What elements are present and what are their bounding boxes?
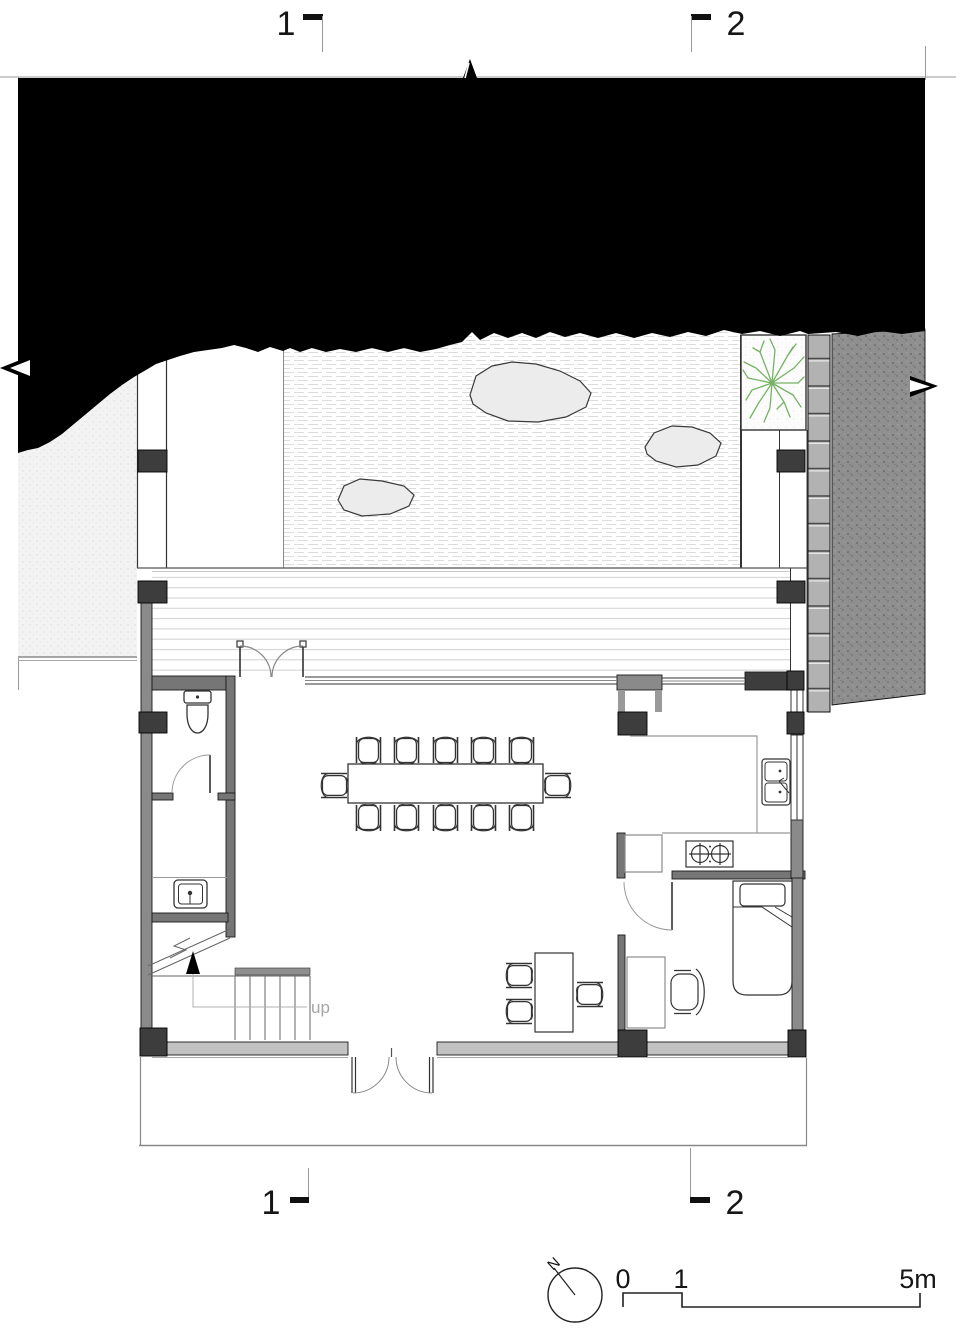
up-label: up: [311, 998, 330, 1017]
dining-chair: [434, 804, 458, 831]
study-chair: [506, 1000, 533, 1024]
dining-chair: [472, 804, 496, 831]
dining-chair: [357, 737, 381, 764]
svg-text:1: 1: [277, 5, 296, 43]
study-table: [535, 953, 573, 1032]
desk: [627, 957, 665, 1028]
tree-planter: [741, 335, 806, 430]
bed-icon: [733, 881, 792, 995]
dining-chair: [434, 737, 458, 764]
masonry-retaining-wall: [808, 335, 830, 712]
svg-text:N: N: [544, 1254, 563, 1274]
stair-up-arrow-icon: [186, 951, 200, 974]
svg-text:0: 0: [615, 1264, 630, 1294]
dining-chair: [395, 804, 419, 831]
svg-text:1: 1: [262, 1184, 281, 1222]
section-marker-1-top: 1: [277, 5, 323, 52]
section-marker-2-top: 2: [691, 5, 745, 52]
top-break-mark: [463, 59, 477, 78]
stove-icon: [686, 841, 733, 867]
svg-text:2: 2: [726, 1184, 745, 1222]
svg-text:5m: 5m: [899, 1264, 937, 1294]
study-chair: [576, 983, 603, 1007]
dining-chair: [544, 774, 571, 798]
south-yard: [139, 1056, 807, 1146]
dining-chair: [510, 737, 534, 764]
north-arrow-icon: N: [544, 1254, 602, 1322]
stairs: up: [148, 929, 330, 1040]
hand-sink-icon: [152, 878, 227, 909]
entry-double-door: [352, 1048, 433, 1093]
kitchen-sink-icon: [762, 759, 790, 805]
break-line-arrow-west: [0, 356, 30, 380]
bedroom-door: [624, 882, 672, 930]
toilet-icon: [184, 691, 211, 733]
study-chair: [506, 964, 533, 988]
floor-plan-canvas: up 1 2 1 2 N 0 1 5m: [0, 0, 960, 1333]
toilet-room-door: [172, 755, 210, 793]
dining-chair: [321, 774, 348, 798]
dining-chair: [395, 737, 419, 764]
dining-chair: [472, 737, 496, 764]
courtyard: [138, 330, 741, 568]
office-chair-icon: [671, 969, 704, 1015]
section-marker-1-bottom: 1: [262, 1168, 309, 1222]
section-marker-2-bottom: 2: [690, 1148, 744, 1222]
svg-text:2: 2: [727, 5, 746, 43]
svg-text:1: 1: [673, 1264, 688, 1294]
dining-chair: [357, 804, 381, 831]
wood-deck: [137, 568, 807, 677]
dining-table: [348, 764, 543, 803]
scale-bar: 0 1 5m: [615, 1264, 936, 1307]
dining-chair: [510, 804, 534, 831]
